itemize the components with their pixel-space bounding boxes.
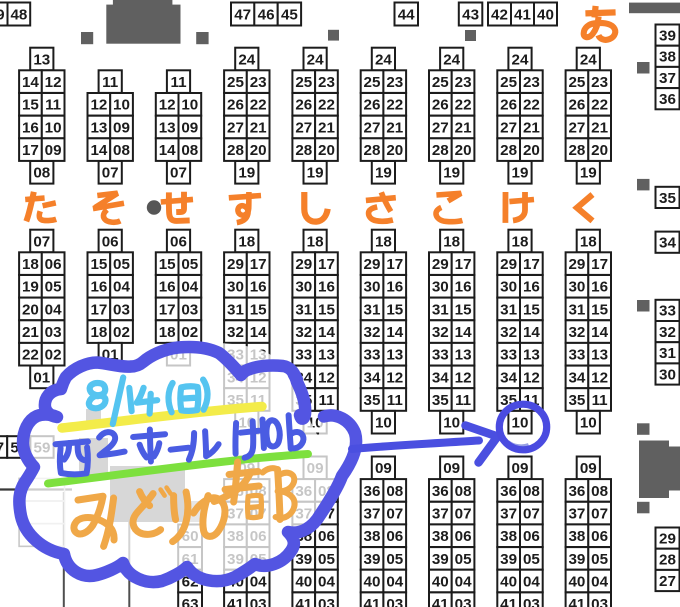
svg-text:19: 19 bbox=[238, 165, 255, 182]
svg-text:30: 30 bbox=[364, 279, 381, 296]
svg-text:05: 05 bbox=[181, 256, 198, 273]
svg-text:07: 07 bbox=[591, 506, 608, 523]
svg-text:34: 34 bbox=[432, 369, 449, 386]
svg-text:07: 07 bbox=[33, 233, 50, 250]
svg-text:35: 35 bbox=[659, 190, 676, 207]
svg-text:17: 17 bbox=[318, 256, 335, 273]
svg-text:39: 39 bbox=[568, 551, 585, 568]
svg-text:07: 07 bbox=[455, 506, 472, 523]
svg-text:03: 03 bbox=[591, 596, 608, 607]
svg-text:03: 03 bbox=[523, 596, 540, 607]
svg-text:11: 11 bbox=[102, 74, 119, 91]
svg-text:14: 14 bbox=[318, 324, 335, 341]
svg-text:10: 10 bbox=[375, 415, 392, 432]
svg-text:08: 08 bbox=[181, 142, 198, 159]
svg-text:21: 21 bbox=[318, 119, 335, 136]
svg-text:31: 31 bbox=[364, 301, 381, 318]
svg-text:18: 18 bbox=[580, 233, 597, 250]
svg-text:32: 32 bbox=[364, 324, 381, 341]
svg-text:10: 10 bbox=[580, 415, 597, 432]
svg-text:26: 26 bbox=[295, 97, 312, 114]
svg-text:09: 09 bbox=[512, 460, 529, 477]
svg-text:11: 11 bbox=[318, 392, 335, 409]
svg-text:31: 31 bbox=[659, 345, 676, 362]
svg-text:08: 08 bbox=[523, 483, 540, 500]
svg-text:34: 34 bbox=[568, 369, 585, 386]
svg-text:24: 24 bbox=[512, 51, 529, 68]
svg-text:33: 33 bbox=[500, 347, 517, 364]
svg-text:27: 27 bbox=[500, 119, 517, 136]
svg-text:33: 33 bbox=[432, 347, 449, 364]
svg-text:16: 16 bbox=[318, 279, 335, 296]
svg-text:33: 33 bbox=[568, 347, 585, 364]
svg-text:26: 26 bbox=[364, 97, 381, 114]
svg-text:46: 46 bbox=[258, 6, 275, 23]
svg-text:26: 26 bbox=[227, 97, 244, 114]
svg-text:63: 63 bbox=[182, 596, 199, 607]
svg-text:23: 23 bbox=[523, 74, 540, 91]
svg-text:13: 13 bbox=[523, 347, 540, 364]
svg-text:34: 34 bbox=[659, 235, 676, 252]
svg-text:04: 04 bbox=[455, 574, 472, 591]
svg-text:40: 40 bbox=[295, 574, 312, 591]
svg-text:05: 05 bbox=[318, 551, 335, 568]
svg-text:27: 27 bbox=[659, 573, 676, 590]
svg-text:05: 05 bbox=[45, 279, 62, 296]
svg-text:21: 21 bbox=[386, 119, 403, 136]
svg-text:11: 11 bbox=[45, 97, 62, 114]
svg-text:30: 30 bbox=[432, 279, 449, 296]
svg-text:22: 22 bbox=[386, 97, 403, 114]
svg-text:13: 13 bbox=[33, 51, 50, 68]
svg-text:03: 03 bbox=[113, 301, 130, 318]
svg-text:16: 16 bbox=[22, 119, 39, 136]
svg-text:32: 32 bbox=[568, 324, 585, 341]
svg-text:12: 12 bbox=[90, 97, 107, 114]
svg-text:24: 24 bbox=[307, 51, 324, 68]
svg-text:41: 41 bbox=[514, 6, 531, 23]
svg-text:20: 20 bbox=[455, 142, 472, 159]
svg-text:12: 12 bbox=[45, 74, 62, 91]
svg-text:03: 03 bbox=[455, 596, 472, 607]
svg-text:33: 33 bbox=[295, 347, 312, 364]
svg-text:30: 30 bbox=[659, 366, 676, 383]
svg-text:15: 15 bbox=[523, 301, 540, 318]
svg-text:04: 04 bbox=[523, 574, 540, 591]
svg-text:36: 36 bbox=[364, 483, 381, 500]
svg-text:13: 13 bbox=[386, 347, 403, 364]
svg-text:24: 24 bbox=[375, 51, 392, 68]
svg-text:30: 30 bbox=[227, 279, 244, 296]
svg-text:37: 37 bbox=[659, 70, 676, 87]
svg-text:10: 10 bbox=[113, 97, 130, 114]
svg-text:19: 19 bbox=[580, 165, 597, 182]
svg-text:39: 39 bbox=[295, 551, 312, 568]
svg-text:37: 37 bbox=[500, 506, 517, 523]
svg-text:18: 18 bbox=[307, 233, 324, 250]
svg-text:05: 05 bbox=[113, 256, 130, 273]
svg-text:09: 09 bbox=[181, 119, 198, 136]
svg-text:06: 06 bbox=[318, 528, 335, 545]
svg-text:40: 40 bbox=[568, 574, 585, 591]
svg-text:34: 34 bbox=[364, 369, 381, 386]
svg-text:10: 10 bbox=[443, 415, 460, 432]
svg-text:06: 06 bbox=[386, 528, 403, 545]
svg-text:12: 12 bbox=[159, 97, 176, 114]
svg-text:36: 36 bbox=[568, 483, 585, 500]
svg-text:32: 32 bbox=[432, 324, 449, 341]
svg-text:06: 06 bbox=[45, 256, 62, 273]
svg-text:48: 48 bbox=[10, 6, 27, 23]
svg-text:41: 41 bbox=[295, 596, 312, 607]
svg-text:39: 39 bbox=[659, 27, 676, 44]
svg-text:15: 15 bbox=[455, 301, 472, 318]
svg-text:11: 11 bbox=[592, 392, 609, 409]
svg-text:39: 39 bbox=[364, 551, 381, 568]
svg-text:32: 32 bbox=[295, 324, 312, 341]
svg-text:38: 38 bbox=[568, 528, 585, 545]
svg-text:37: 37 bbox=[568, 506, 585, 523]
svg-text:29: 29 bbox=[227, 256, 244, 273]
svg-text:03: 03 bbox=[386, 596, 403, 607]
svg-text:22: 22 bbox=[523, 97, 540, 114]
svg-text:06: 06 bbox=[523, 528, 540, 545]
svg-text:26: 26 bbox=[500, 97, 517, 114]
svg-text:33: 33 bbox=[659, 303, 676, 320]
svg-text:36: 36 bbox=[659, 91, 676, 108]
svg-text:09: 09 bbox=[113, 119, 130, 136]
svg-text:26: 26 bbox=[568, 97, 585, 114]
svg-text:09: 09 bbox=[45, 142, 62, 159]
svg-text:29: 29 bbox=[295, 256, 312, 273]
svg-text:12: 12 bbox=[386, 369, 403, 386]
svg-text:18: 18 bbox=[443, 233, 460, 250]
svg-text:09: 09 bbox=[580, 460, 597, 477]
svg-text:04: 04 bbox=[181, 279, 198, 296]
svg-text:44: 44 bbox=[398, 6, 415, 23]
svg-text:04: 04 bbox=[113, 279, 130, 296]
svg-text:12: 12 bbox=[455, 369, 472, 386]
svg-text:15: 15 bbox=[591, 301, 608, 318]
svg-text:21: 21 bbox=[523, 119, 540, 136]
svg-text:23: 23 bbox=[386, 74, 403, 91]
svg-text:03: 03 bbox=[45, 324, 62, 341]
svg-text:20: 20 bbox=[250, 142, 267, 159]
svg-text:30: 30 bbox=[500, 279, 517, 296]
svg-text:22: 22 bbox=[22, 347, 39, 364]
svg-text:47: 47 bbox=[234, 6, 251, 23]
svg-text:20: 20 bbox=[523, 142, 540, 159]
svg-text:28: 28 bbox=[295, 142, 312, 159]
svg-text:19: 19 bbox=[307, 165, 324, 182]
svg-text:12: 12 bbox=[591, 369, 608, 386]
svg-text:38: 38 bbox=[659, 49, 676, 66]
svg-text:14: 14 bbox=[250, 324, 267, 341]
svg-text:05: 05 bbox=[455, 551, 472, 568]
svg-text:09: 09 bbox=[443, 460, 460, 477]
svg-text:07: 07 bbox=[170, 165, 187, 182]
svg-text:14: 14 bbox=[90, 142, 107, 159]
svg-text:04: 04 bbox=[45, 301, 62, 318]
svg-text:40: 40 bbox=[500, 574, 517, 591]
svg-text:23: 23 bbox=[591, 74, 608, 91]
svg-text:14: 14 bbox=[523, 324, 540, 341]
svg-text:38: 38 bbox=[364, 528, 381, 545]
svg-text:19: 19 bbox=[512, 165, 529, 182]
svg-text:35: 35 bbox=[568, 392, 585, 409]
svg-text:41: 41 bbox=[500, 596, 517, 607]
svg-text:40: 40 bbox=[432, 574, 449, 591]
svg-text:08: 08 bbox=[455, 483, 472, 500]
svg-text:07: 07 bbox=[386, 506, 403, 523]
svg-text:39: 39 bbox=[500, 551, 517, 568]
svg-text:25: 25 bbox=[432, 74, 449, 91]
svg-text:32: 32 bbox=[227, 324, 244, 341]
svg-text:22: 22 bbox=[318, 97, 335, 114]
svg-text:17: 17 bbox=[22, 142, 39, 159]
svg-text:16: 16 bbox=[159, 279, 176, 296]
svg-text:28: 28 bbox=[432, 142, 449, 159]
svg-text:36: 36 bbox=[500, 483, 517, 500]
svg-text:33: 33 bbox=[364, 347, 381, 364]
svg-text:04: 04 bbox=[591, 574, 608, 591]
svg-text:38: 38 bbox=[432, 528, 449, 545]
svg-text:08: 08 bbox=[386, 483, 403, 500]
svg-text:05: 05 bbox=[591, 551, 608, 568]
svg-text:14: 14 bbox=[159, 142, 176, 159]
svg-text:15: 15 bbox=[386, 301, 403, 318]
svg-text:18: 18 bbox=[375, 233, 392, 250]
svg-text:32: 32 bbox=[659, 324, 676, 341]
svg-text:12: 12 bbox=[318, 369, 335, 386]
svg-text:41: 41 bbox=[227, 596, 244, 607]
svg-text:25: 25 bbox=[500, 74, 517, 91]
svg-text:41: 41 bbox=[568, 596, 585, 607]
svg-text:31: 31 bbox=[500, 301, 517, 318]
svg-text:19: 19 bbox=[443, 165, 460, 182]
svg-text:16: 16 bbox=[386, 279, 403, 296]
svg-text:29: 29 bbox=[500, 256, 517, 273]
svg-text:24: 24 bbox=[238, 51, 255, 68]
svg-text:05: 05 bbox=[523, 551, 540, 568]
svg-text:34: 34 bbox=[500, 369, 517, 386]
svg-text:04: 04 bbox=[250, 574, 267, 591]
svg-text:32: 32 bbox=[500, 324, 517, 341]
svg-text:37: 37 bbox=[432, 506, 449, 523]
svg-text:14: 14 bbox=[386, 324, 403, 341]
svg-text:17: 17 bbox=[159, 301, 176, 318]
svg-text:30: 30 bbox=[295, 279, 312, 296]
svg-text:41: 41 bbox=[364, 596, 381, 607]
svg-text:02: 02 bbox=[113, 324, 130, 341]
svg-text:49: 49 bbox=[0, 6, 5, 23]
svg-text:06: 06 bbox=[591, 528, 608, 545]
svg-text:20: 20 bbox=[22, 301, 39, 318]
svg-text:13: 13 bbox=[318, 347, 335, 364]
svg-text:23: 23 bbox=[455, 74, 472, 91]
svg-text:28: 28 bbox=[227, 142, 244, 159]
svg-text:13: 13 bbox=[90, 119, 107, 136]
svg-text:29: 29 bbox=[432, 256, 449, 273]
svg-text:04: 04 bbox=[318, 574, 335, 591]
svg-text:14: 14 bbox=[22, 74, 39, 91]
svg-text:11: 11 bbox=[170, 74, 187, 91]
svg-text:07: 07 bbox=[523, 506, 540, 523]
svg-text:28: 28 bbox=[568, 142, 585, 159]
svg-text:15: 15 bbox=[22, 97, 39, 114]
svg-text:25: 25 bbox=[568, 74, 585, 91]
svg-text:16: 16 bbox=[455, 279, 472, 296]
svg-text:02: 02 bbox=[45, 347, 62, 364]
svg-text:16: 16 bbox=[250, 279, 267, 296]
svg-text:18: 18 bbox=[159, 324, 176, 341]
svg-text:36: 36 bbox=[432, 483, 449, 500]
svg-text:17: 17 bbox=[523, 256, 540, 273]
svg-text:25: 25 bbox=[364, 74, 381, 91]
svg-text:17: 17 bbox=[591, 256, 608, 273]
svg-text:20: 20 bbox=[318, 142, 335, 159]
svg-text:11: 11 bbox=[455, 392, 472, 409]
svg-text:11: 11 bbox=[387, 392, 404, 409]
svg-text:01: 01 bbox=[33, 369, 50, 386]
svg-text:25: 25 bbox=[227, 74, 244, 91]
svg-text:22: 22 bbox=[250, 97, 267, 114]
svg-text:06: 06 bbox=[170, 233, 187, 250]
svg-text:20: 20 bbox=[591, 142, 608, 159]
svg-text:13: 13 bbox=[159, 119, 176, 136]
svg-text:23: 23 bbox=[318, 74, 335, 91]
svg-text:14: 14 bbox=[591, 324, 608, 341]
svg-text:21: 21 bbox=[250, 119, 267, 136]
svg-text:27: 27 bbox=[364, 119, 381, 136]
svg-text:27: 27 bbox=[227, 119, 244, 136]
svg-text:10: 10 bbox=[512, 415, 529, 432]
svg-text:40: 40 bbox=[537, 6, 554, 23]
svg-text:31: 31 bbox=[568, 301, 585, 318]
svg-text:18: 18 bbox=[238, 233, 255, 250]
svg-text:39: 39 bbox=[432, 551, 449, 568]
svg-text:28: 28 bbox=[659, 552, 676, 569]
svg-text:13: 13 bbox=[455, 347, 472, 364]
svg-text:18: 18 bbox=[22, 256, 39, 273]
svg-text:57: 57 bbox=[0, 439, 4, 456]
svg-text:24: 24 bbox=[443, 51, 460, 68]
svg-text:25: 25 bbox=[295, 74, 312, 91]
svg-text:10: 10 bbox=[45, 119, 62, 136]
svg-text:16: 16 bbox=[523, 279, 540, 296]
svg-text:27: 27 bbox=[432, 119, 449, 136]
svg-text:35: 35 bbox=[432, 392, 449, 409]
svg-text:45: 45 bbox=[281, 6, 298, 23]
svg-text:19: 19 bbox=[375, 165, 392, 182]
svg-text:15: 15 bbox=[318, 301, 335, 318]
svg-text:38: 38 bbox=[500, 528, 517, 545]
svg-text:24: 24 bbox=[580, 51, 597, 68]
svg-text:08: 08 bbox=[591, 483, 608, 500]
svg-text:17: 17 bbox=[250, 256, 267, 273]
svg-text:15: 15 bbox=[159, 256, 176, 273]
svg-text:17: 17 bbox=[90, 301, 107, 318]
svg-text:40: 40 bbox=[364, 574, 381, 591]
svg-text:13: 13 bbox=[591, 347, 608, 364]
svg-text:08: 08 bbox=[33, 165, 50, 182]
svg-text:04: 04 bbox=[386, 574, 403, 591]
svg-text:26: 26 bbox=[432, 97, 449, 114]
svg-text:10: 10 bbox=[181, 97, 198, 114]
svg-text:42: 42 bbox=[491, 6, 508, 23]
svg-text:21: 21 bbox=[591, 119, 608, 136]
svg-text:31: 31 bbox=[432, 301, 449, 318]
svg-text:20: 20 bbox=[386, 142, 403, 159]
svg-text:15: 15 bbox=[90, 256, 107, 273]
svg-text:31: 31 bbox=[227, 301, 244, 318]
svg-text:22: 22 bbox=[455, 97, 472, 114]
svg-text:29: 29 bbox=[568, 256, 585, 273]
svg-text:29: 29 bbox=[364, 256, 381, 273]
svg-text:41: 41 bbox=[432, 596, 449, 607]
svg-text:18: 18 bbox=[512, 233, 529, 250]
svg-text:07: 07 bbox=[102, 165, 119, 182]
svg-text:27: 27 bbox=[295, 119, 312, 136]
svg-text:28: 28 bbox=[364, 142, 381, 159]
svg-text:12: 12 bbox=[523, 369, 540, 386]
svg-text:06: 06 bbox=[455, 528, 472, 545]
svg-text:43: 43 bbox=[462, 6, 479, 23]
svg-text:09: 09 bbox=[375, 460, 392, 477]
svg-text:17: 17 bbox=[386, 256, 403, 273]
svg-text:22: 22 bbox=[591, 97, 608, 114]
svg-text:21: 21 bbox=[22, 324, 39, 341]
svg-text:02: 02 bbox=[181, 324, 198, 341]
svg-text:03: 03 bbox=[318, 596, 335, 607]
svg-text:15: 15 bbox=[250, 301, 267, 318]
svg-text:29: 29 bbox=[659, 530, 676, 547]
svg-text:30: 30 bbox=[568, 279, 585, 296]
svg-text:31: 31 bbox=[295, 301, 312, 318]
svg-text:37: 37 bbox=[364, 506, 381, 523]
svg-text:21: 21 bbox=[455, 119, 472, 136]
svg-text:23: 23 bbox=[250, 74, 267, 91]
svg-text:05: 05 bbox=[386, 551, 403, 568]
svg-text:28: 28 bbox=[500, 142, 517, 159]
svg-text:16: 16 bbox=[591, 279, 608, 296]
svg-text:08: 08 bbox=[113, 142, 130, 159]
svg-text:03: 03 bbox=[181, 301, 198, 318]
svg-text:19: 19 bbox=[22, 279, 39, 296]
svg-text:17: 17 bbox=[455, 256, 472, 273]
svg-text:14: 14 bbox=[455, 324, 472, 341]
svg-text:03: 03 bbox=[250, 596, 267, 607]
svg-text:35: 35 bbox=[364, 392, 381, 409]
svg-text:16: 16 bbox=[90, 279, 107, 296]
svg-text:18: 18 bbox=[90, 324, 107, 341]
svg-text:06: 06 bbox=[102, 233, 119, 250]
svg-text:27: 27 bbox=[568, 119, 585, 136]
